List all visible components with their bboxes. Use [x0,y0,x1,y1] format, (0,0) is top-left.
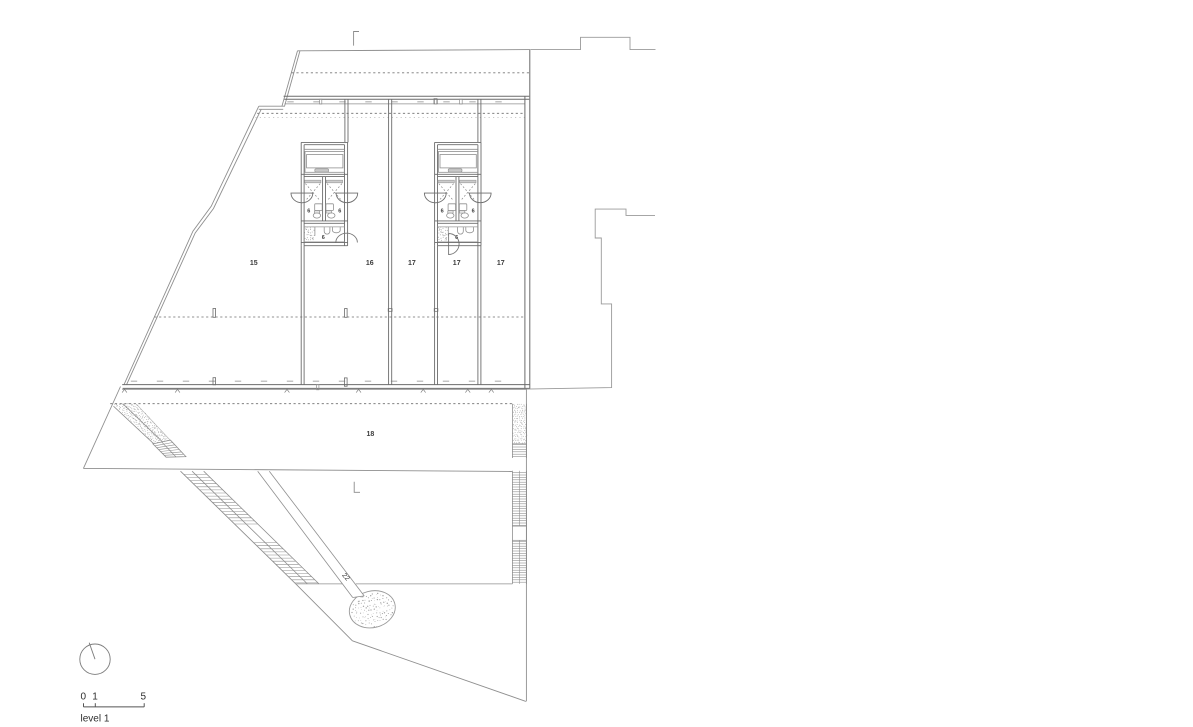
svg-text:17: 17 [408,260,416,267]
svg-text:6: 6 [307,208,310,214]
svg-text:6: 6 [338,208,341,214]
svg-text:17: 17 [497,260,505,267]
svg-text:6: 6 [322,235,325,241]
svg-text:level 1: level 1 [81,713,110,724]
svg-text:17: 17 [453,260,461,267]
svg-text:16: 16 [366,260,374,267]
svg-text:1: 1 [92,692,98,703]
svg-text:0: 0 [81,692,87,703]
svg-text:6: 6 [441,208,444,214]
svg-text:18: 18 [367,431,375,438]
svg-text:15: 15 [250,260,258,267]
svg-text:6: 6 [472,208,475,214]
svg-text:5: 5 [141,692,147,703]
